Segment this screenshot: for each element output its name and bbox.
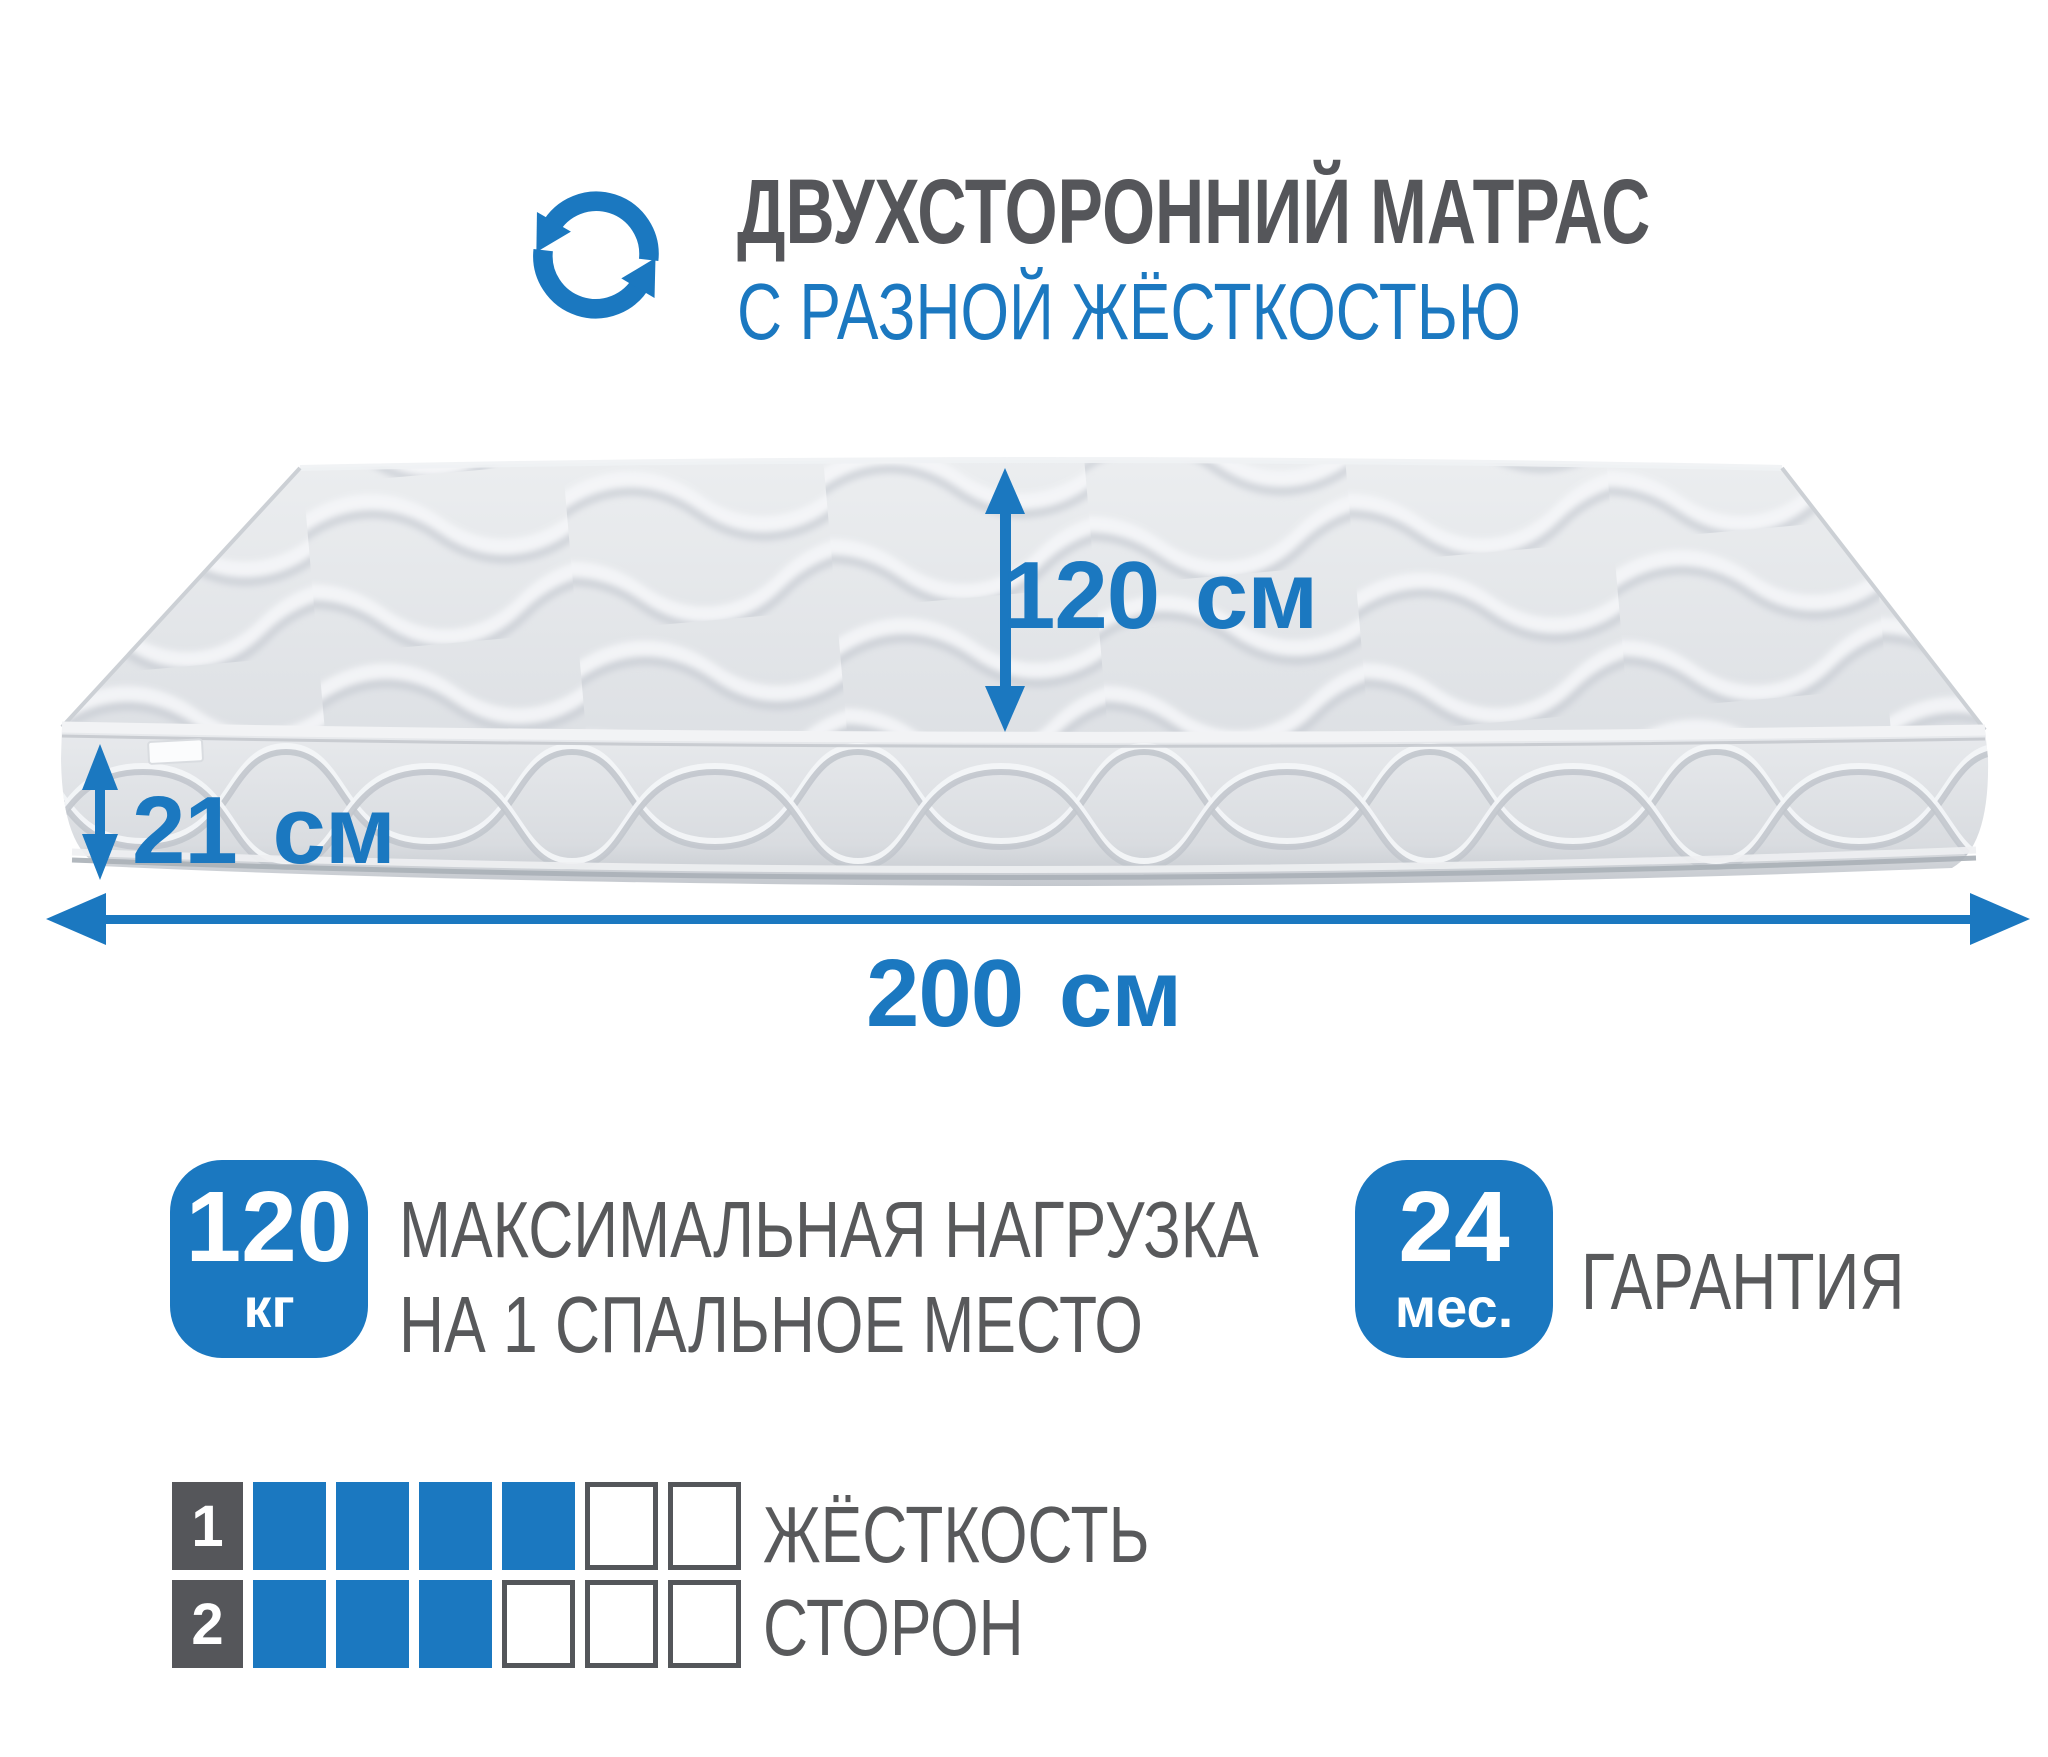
- firmness-cell: [502, 1580, 575, 1668]
- rotate-arrows-icon: [510, 180, 676, 330]
- page-title: ДВУХСТОРОННИЙ МАТРАС: [737, 166, 1650, 258]
- firmness-cell: [253, 1482, 326, 1570]
- firmness-row-side2: 2: [172, 1580, 741, 1668]
- warranty-unit: мес.: [1395, 1279, 1514, 1338]
- max-load-unit: кг: [243, 1279, 294, 1338]
- max-load-value: 120: [186, 1180, 353, 1275]
- firmness-cell: [668, 1482, 741, 1570]
- warranty-caption: ГАРАНТИЯ: [1581, 1234, 1904, 1329]
- firmness-row-side1: 1: [172, 1482, 741, 1570]
- firmness-cells: [253, 1580, 741, 1668]
- firmness-cell: [336, 1580, 409, 1668]
- page-subtitle: С РАЗНОЙ ЖЁСТКОСТЬЮ: [737, 272, 1700, 352]
- mattress-tag: [148, 739, 203, 764]
- firmness-cells: [253, 1482, 741, 1570]
- firmness-cell: [502, 1482, 575, 1570]
- max-load-badge: 120 кг: [170, 1160, 368, 1358]
- firmness-caption-line2: СТОРОН: [763, 1581, 1150, 1674]
- max-load-caption-line2: НА 1 СПАЛЬНОЕ МЕСТО: [399, 1277, 1259, 1372]
- length-dimension-label: 200 см: [866, 946, 1181, 1042]
- firmness-cell: [585, 1580, 658, 1668]
- max-load-caption-line1: МАКСИМАЛЬНАЯ НАГРУЗКА: [399, 1182, 1259, 1277]
- firmness-cell: [253, 1580, 326, 1668]
- length-dimension-arrow: [46, 893, 2030, 945]
- firmness-caption: ЖЁСТКОСТЬ СТОРОН: [763, 1488, 1150, 1674]
- width-dimension-label: 120 см: [1002, 548, 1317, 644]
- firmness-cell: [419, 1580, 492, 1668]
- max-load-caption: МАКСИМАЛЬНАЯ НАГРУЗКА НА 1 СПАЛЬНОЕ МЕСТ…: [399, 1182, 1259, 1372]
- thickness-dimension-label: 21 см: [132, 783, 395, 879]
- warranty-badge: 24 мес.: [1355, 1160, 1553, 1358]
- firmness-side-label: 1: [172, 1482, 243, 1570]
- firmness-cell: [336, 1482, 409, 1570]
- firmness-cell: [419, 1482, 492, 1570]
- warranty-value: 24: [1398, 1180, 1509, 1275]
- firmness-side-label: 2: [172, 1580, 243, 1668]
- firmness-cell: [668, 1580, 741, 1668]
- header: ДВУХСТОРОННИЙ МАТРАС С РАЗНОЙ ЖЁСТКОСТЬЮ: [737, 166, 1971, 352]
- firmness-cell: [585, 1482, 658, 1570]
- firmness-caption-line1: ЖЁСТКОСТЬ: [763, 1488, 1150, 1581]
